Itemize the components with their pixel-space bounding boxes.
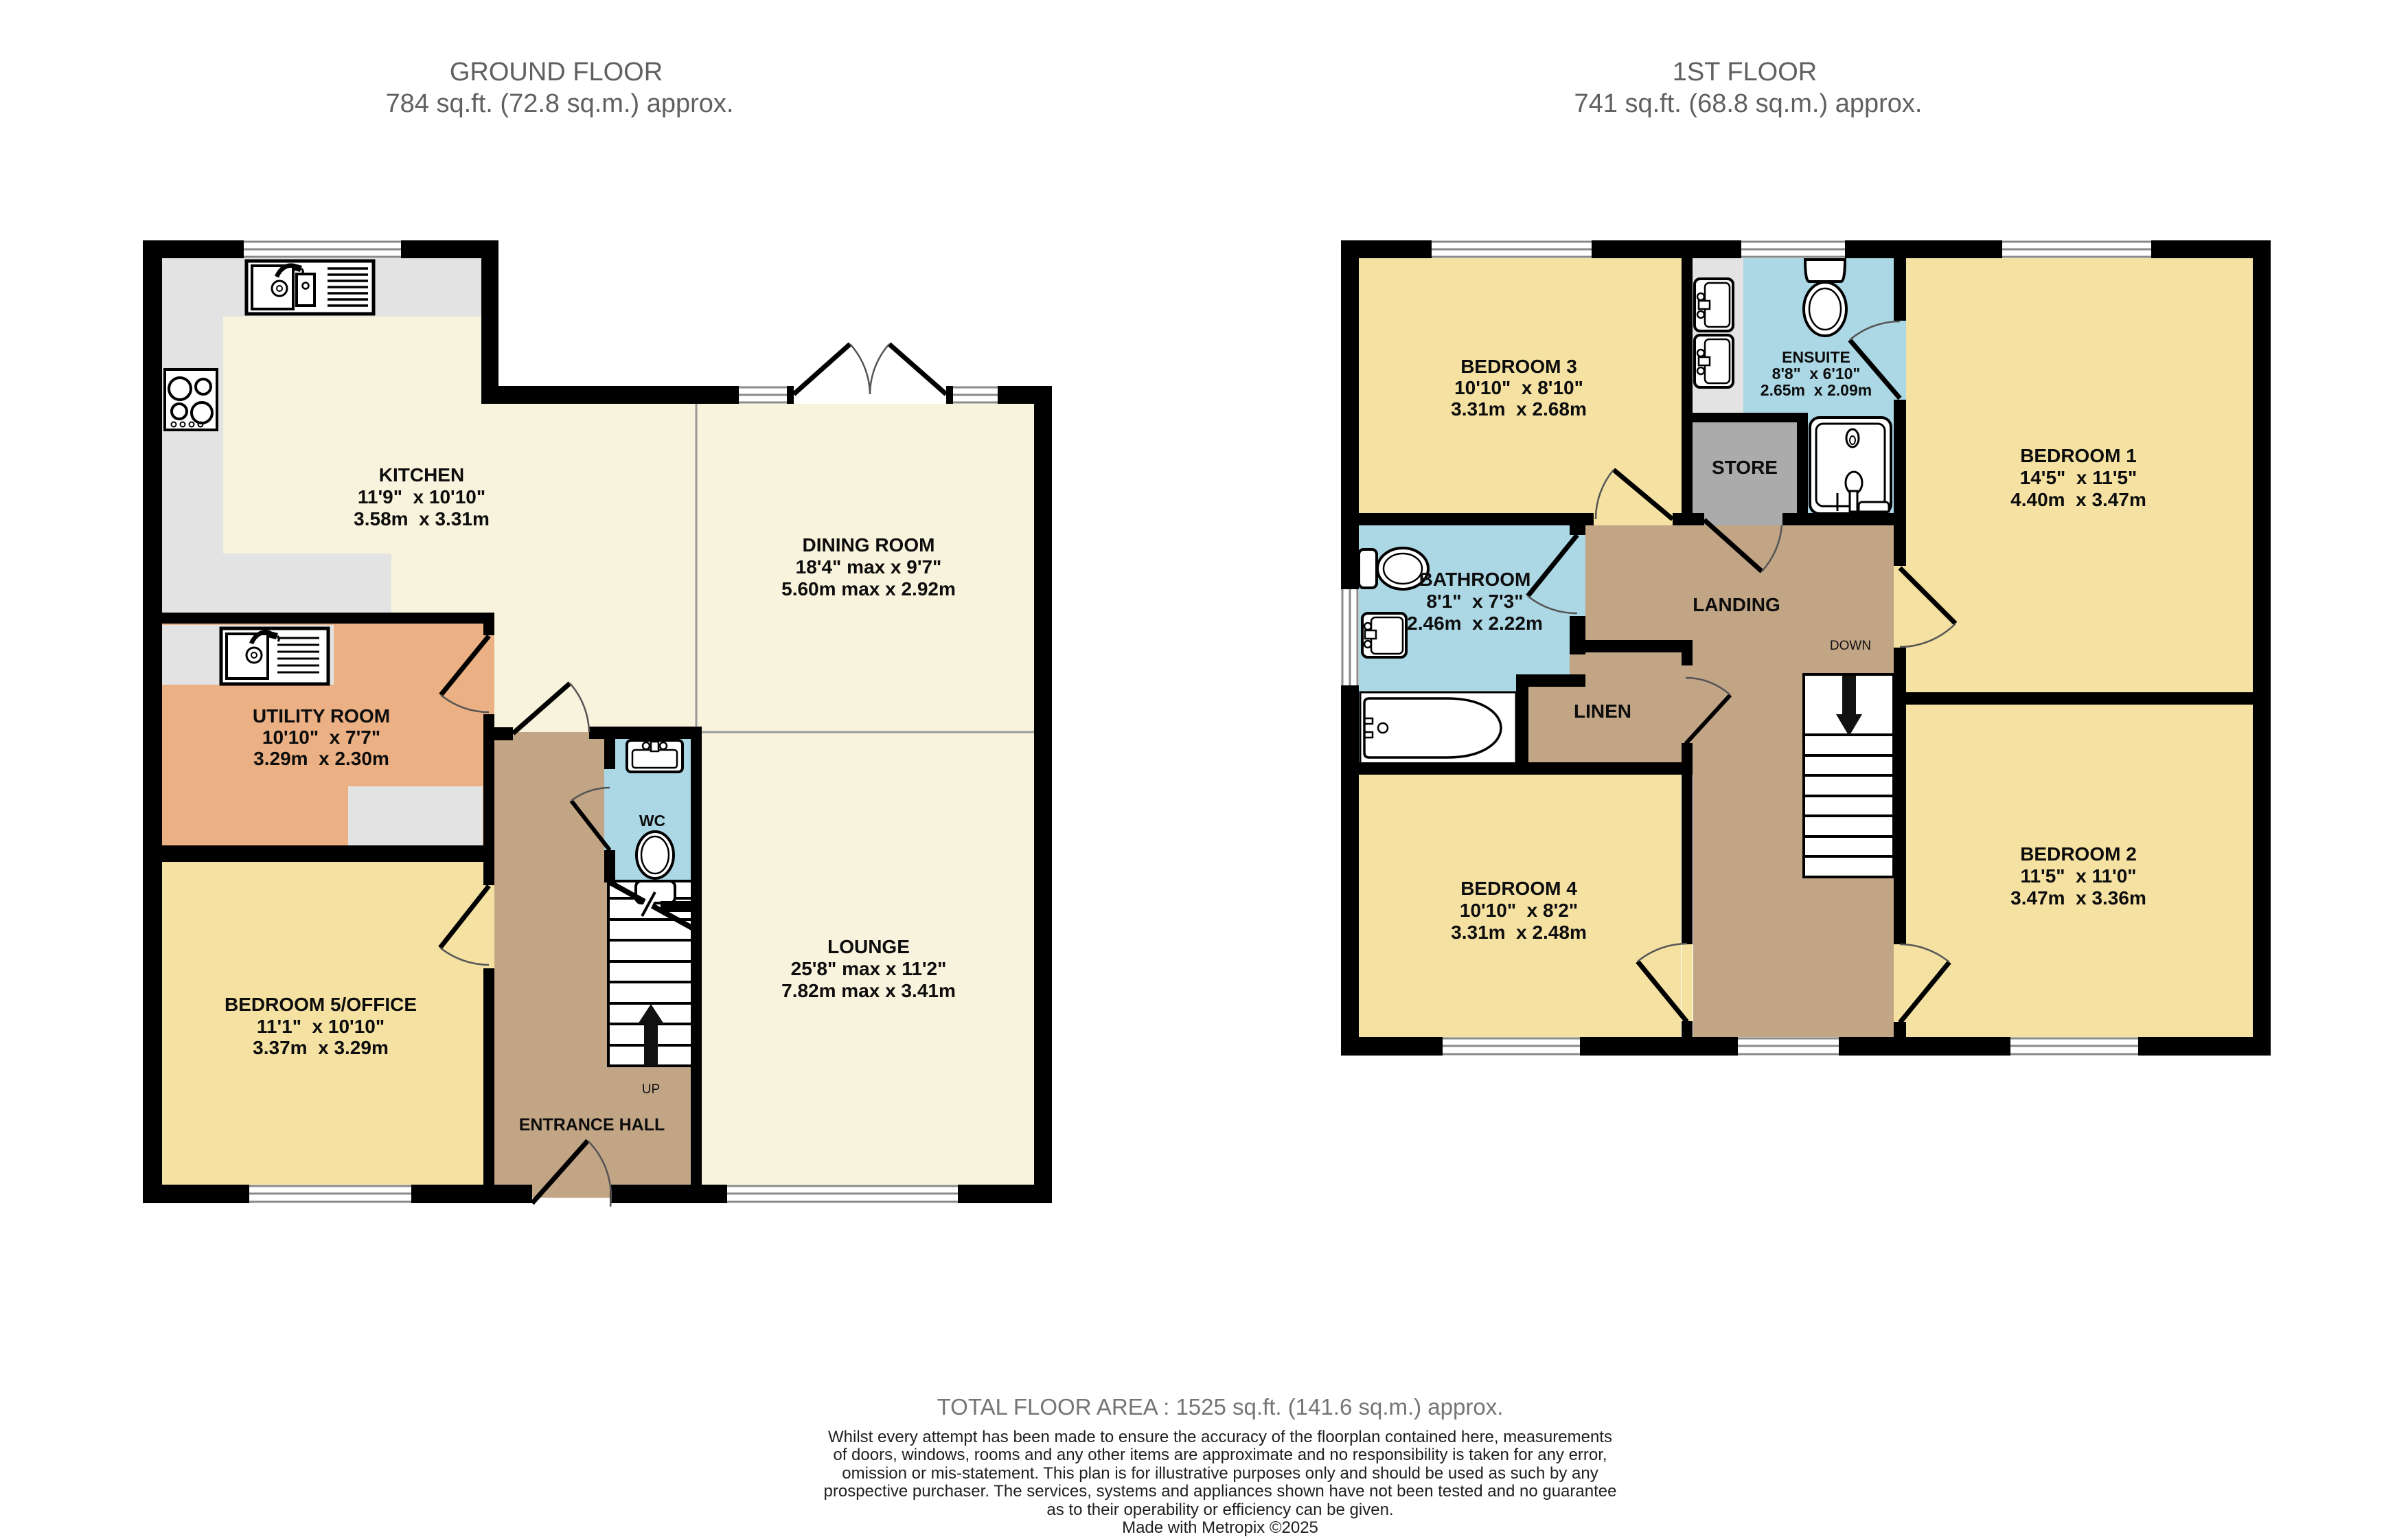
svg-text:11'5" x 11'0": 11'5" x 11'0" <box>2020 865 2136 887</box>
svg-text:BEDROOM 3: BEDROOM 3 <box>1460 356 1577 377</box>
svg-text:4.40m x 3.47m: 4.40m x 3.47m <box>2010 489 2146 510</box>
svg-text:8'1" x 7'3": 8'1" x 7'3" <box>1426 591 1523 612</box>
svg-text:BATHROOM: BATHROOM <box>1419 569 1531 590</box>
svg-text:14'5" x 11'5": 14'5" x 11'5" <box>2020 467 2137 488</box>
svg-text:3.29m x 2.30m: 3.29m x 2.30m <box>253 748 389 769</box>
svg-text:WC: WC <box>639 812 665 830</box>
svg-text:LINEN: LINEN <box>1574 700 1631 722</box>
svg-text:1ST FLOOR: 1ST FLOOR <box>1673 58 1817 87</box>
svg-text:8'8" x 6'10": 8'8" x 6'10" <box>1772 365 1861 383</box>
svg-text:784 sq.ft. (72.8 sq.m.) approx: 784 sq.ft. (72.8 sq.m.) approx. <box>386 89 734 118</box>
svg-text:of doors, windows, rooms and a: of doors, windows, rooms and any other i… <box>833 1446 1607 1464</box>
svg-text:2.46m x 2.22m: 2.46m x 2.22m <box>1407 613 1543 634</box>
svg-text:5.60m max x 2.92m: 5.60m max x 2.92m <box>781 578 956 600</box>
svg-text:ENTRANCE HALL: ENTRANCE HALL <box>519 1115 665 1135</box>
svg-text:3.31m x 2.48m: 3.31m x 2.48m <box>1451 922 1587 943</box>
svg-text:UP: UP <box>642 1082 660 1097</box>
svg-text:BEDROOM 1: BEDROOM 1 <box>2020 445 2137 466</box>
svg-text:ENSUITE: ENSUITE <box>1782 348 1850 366</box>
svg-text:prospective purchaser. The ser: prospective purchaser. The services, sys… <box>824 1482 1617 1501</box>
svg-text:10'10" x 8'2": 10'10" x 8'2" <box>1460 900 1578 921</box>
svg-text:omission or mis-statement. Thi: omission or mis-statement. This plan is … <box>842 1464 1598 1483</box>
svg-text:DINING ROOM: DINING ROOM <box>803 534 935 556</box>
svg-text:BEDROOM 5/OFFICE: BEDROOM 5/OFFICE <box>225 994 417 1015</box>
svg-text:10'10" x 8'10": 10'10" x 8'10" <box>1454 377 1583 398</box>
svg-text:3.31m x 2.68m: 3.31m x 2.68m <box>1451 398 1587 420</box>
svg-text:KITCHEN: KITCHEN <box>379 464 464 486</box>
svg-text:11'9" x 10'10": 11'9" x 10'10" <box>358 486 485 508</box>
svg-text:UTILITY ROOM: UTILITY ROOM <box>253 705 390 727</box>
svg-text:3.58m x 3.31m: 3.58m x 3.31m <box>354 508 490 529</box>
svg-text:as to their operability or eff: as to their operability or efficiency ca… <box>1046 1501 1393 1519</box>
svg-text:741 sq.ft. (68.8 sq.m.) approx: 741 sq.ft. (68.8 sq.m.) approx. <box>1574 89 1923 118</box>
svg-text:STORE: STORE <box>1712 457 1778 478</box>
svg-text:3.47m x 3.36m: 3.47m x 3.36m <box>2010 887 2146 909</box>
svg-text:LANDING: LANDING <box>1693 594 1780 615</box>
svg-text:Made with Metropix ©2025: Made with Metropix ©2025 <box>1122 1518 1318 1537</box>
svg-text:BEDROOM 2: BEDROOM 2 <box>2020 843 2137 865</box>
svg-text:2.65m x 2.09m: 2.65m x 2.09m <box>1761 381 1872 399</box>
svg-text:LOUNGE: LOUNGE <box>827 936 910 957</box>
svg-text:DOWN: DOWN <box>1830 639 1871 653</box>
svg-text:11'1" x 10'10": 11'1" x 10'10" <box>257 1016 385 1037</box>
svg-text:3.37m x 3.29m: 3.37m x 3.29m <box>253 1037 389 1058</box>
svg-text:GROUND FLOOR: GROUND FLOOR <box>450 58 663 87</box>
svg-text:7.82m max x 3.41m: 7.82m max x 3.41m <box>781 980 956 1001</box>
svg-text:Whilst every attempt has been: Whilst every attempt has been made to en… <box>828 1428 1612 1446</box>
svg-text:18'4" max x 9'7": 18'4" max x 9'7" <box>796 556 942 578</box>
svg-text:TOTAL FLOOR AREA : 1525 sq.ft.: TOTAL FLOOR AREA : 1525 sq.ft. (141.6 sq… <box>937 1394 1504 1420</box>
svg-text:10'10" x 7'7": 10'10" x 7'7" <box>262 727 380 748</box>
svg-text:25'8" max x 11'2": 25'8" max x 11'2" <box>791 958 947 979</box>
svg-text:BEDROOM 4: BEDROOM 4 <box>1460 878 1577 899</box>
